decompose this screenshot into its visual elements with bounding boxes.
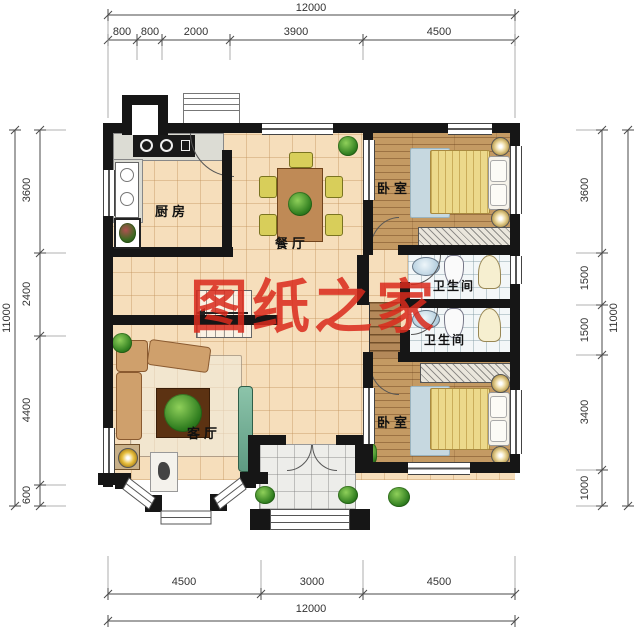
dim-top-seg-1: 800 [113, 26, 131, 38]
floor-plan: 厨房 餐厅 卧室 卫生间 卫生间 卧室 客厅 图纸之家 [0, 0, 640, 631]
dim-bottom-seg-1: 4500 [172, 576, 196, 588]
dim-left-seg-2: 2400 [21, 282, 33, 306]
dim-bottom-total: 12000 [296, 603, 327, 615]
dim-right-seg-4: 3400 [579, 400, 591, 424]
dim-top-seg-3: 2000 [184, 26, 208, 38]
dim-top-seg-4: 3900 [284, 26, 308, 38]
dim-left-seg-3: 4400 [21, 398, 33, 422]
dim-top-seg-5: 4500 [427, 26, 451, 38]
dim-left-seg-4: 600 [21, 486, 33, 504]
dimension-lines [0, 0, 640, 631]
dim-left-total: 11000 [1, 303, 13, 333]
dim-right-seg-3: 1500 [579, 318, 591, 342]
dim-bottom-seg-2: 3000 [300, 576, 324, 588]
dim-right-seg-5: 1000 [579, 476, 591, 500]
dim-left-seg-1: 3600 [21, 178, 33, 202]
dim-bottom-seg-3: 4500 [427, 576, 451, 588]
dim-right-seg-1: 3600 [579, 178, 591, 202]
dim-top-total: 12000 [296, 2, 327, 14]
dim-right-total: 11000 [608, 303, 620, 333]
dim-right-seg-2: 1500 [579, 266, 591, 290]
dim-top-seg-2: 800 [141, 26, 159, 38]
